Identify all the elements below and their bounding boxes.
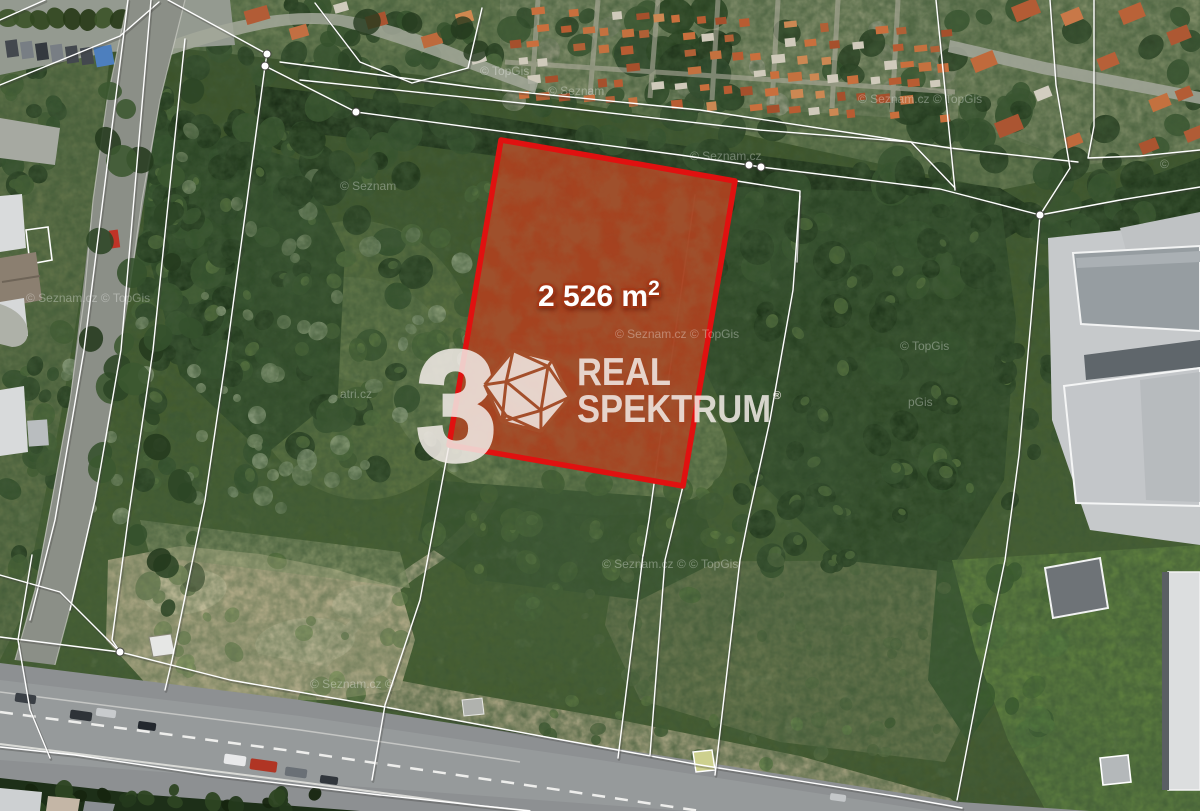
svg-text:© Seznam.cz © TopGis: © Seznam.cz © TopGis <box>26 291 150 305</box>
svg-text:© Seznam: © Seznam <box>548 84 604 98</box>
svg-text:SPEKTRUM: SPEKTRUM <box>577 388 771 431</box>
svg-text:© Seznam.cz: © Seznam.cz <box>690 149 762 163</box>
svg-text:© Seznam.cz ©: © Seznam.cz © <box>310 677 394 691</box>
svg-text:atri.cz: atri.cz <box>340 387 372 401</box>
svg-text:© TopGis: © TopGis <box>480 64 529 78</box>
svg-text:3: 3 <box>417 320 496 492</box>
svg-text:© Seznam.cz © TopGis: © Seznam.cz © TopGis <box>858 92 982 106</box>
svg-text:© TopGis: © TopGis <box>900 339 949 353</box>
svg-text:© Seznam.cz © © TopGis: © Seznam.cz © © TopGis <box>602 557 738 571</box>
svg-text:pGis: pGis <box>908 395 933 409</box>
svg-text:2 526 m2: 2 526 m2 <box>538 277 660 313</box>
svg-text:© Seznam.cz © TopGis: © Seznam.cz © TopGis <box>615 327 739 341</box>
svg-text:© Seznam: © Seznam <box>340 179 396 193</box>
svg-text:®: ® <box>773 390 781 402</box>
svg-text:©: © <box>1160 157 1169 171</box>
